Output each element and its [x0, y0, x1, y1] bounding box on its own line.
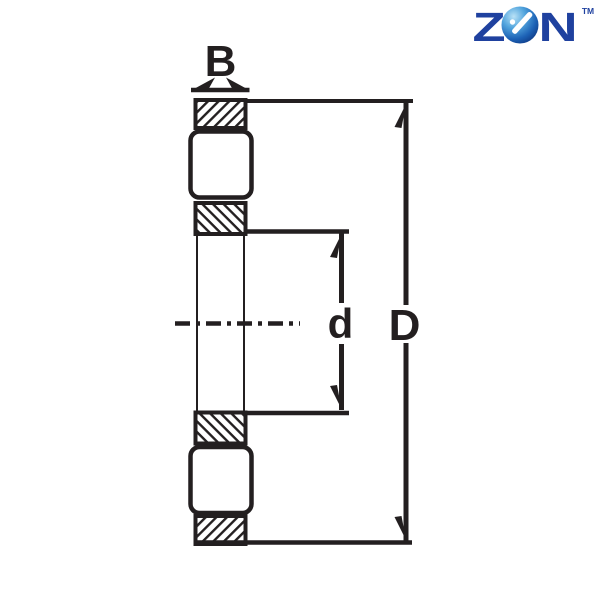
logo-sphere-dot-icon — [510, 19, 515, 24]
inner-ring-bottom-section — [196, 413, 246, 444]
outer-ring-bottom-section — [196, 516, 246, 544]
bearing-dimension-diagram: B d D Z N TM — [0, 0, 600, 600]
diagram-canvas: B d D Z N TM — [0, 0, 600, 600]
logo-letter-n: N — [538, 5, 577, 50]
outer-ring-top-section — [196, 100, 246, 128]
inner-ring-top-section — [196, 203, 246, 234]
trademark-superscript: TM — [582, 6, 594, 16]
outer-diameter-label: D — [389, 301, 421, 350]
zen-logo: Z N TM — [472, 5, 594, 50]
bearing-cross-section — [175, 100, 300, 544]
width-label: B — [205, 37, 237, 86]
logo-letter-z: Z — [472, 5, 505, 50]
rolling-element-bottom — [191, 447, 252, 513]
bore-diameter-label: d — [328, 300, 354, 347]
rolling-element-top — [191, 132, 252, 198]
